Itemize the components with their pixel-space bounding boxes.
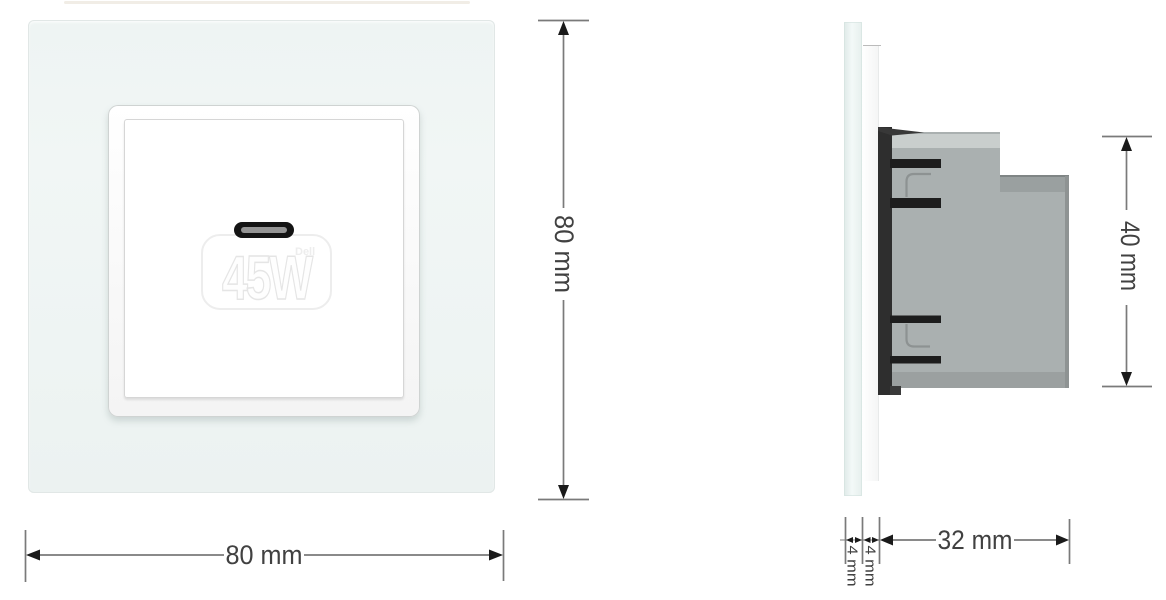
- svg-text:80 mm: 80 mm: [549, 215, 579, 293]
- svg-text:40 mm: 40 mm: [1115, 221, 1145, 291]
- svg-text:80 mm: 80 mm: [226, 540, 303, 570]
- svg-text:4 mm: 4 mm: [862, 546, 879, 587]
- svg-text:32 mm: 32 mm: [938, 525, 1013, 555]
- svg-text:4 mm: 4 mm: [844, 546, 861, 587]
